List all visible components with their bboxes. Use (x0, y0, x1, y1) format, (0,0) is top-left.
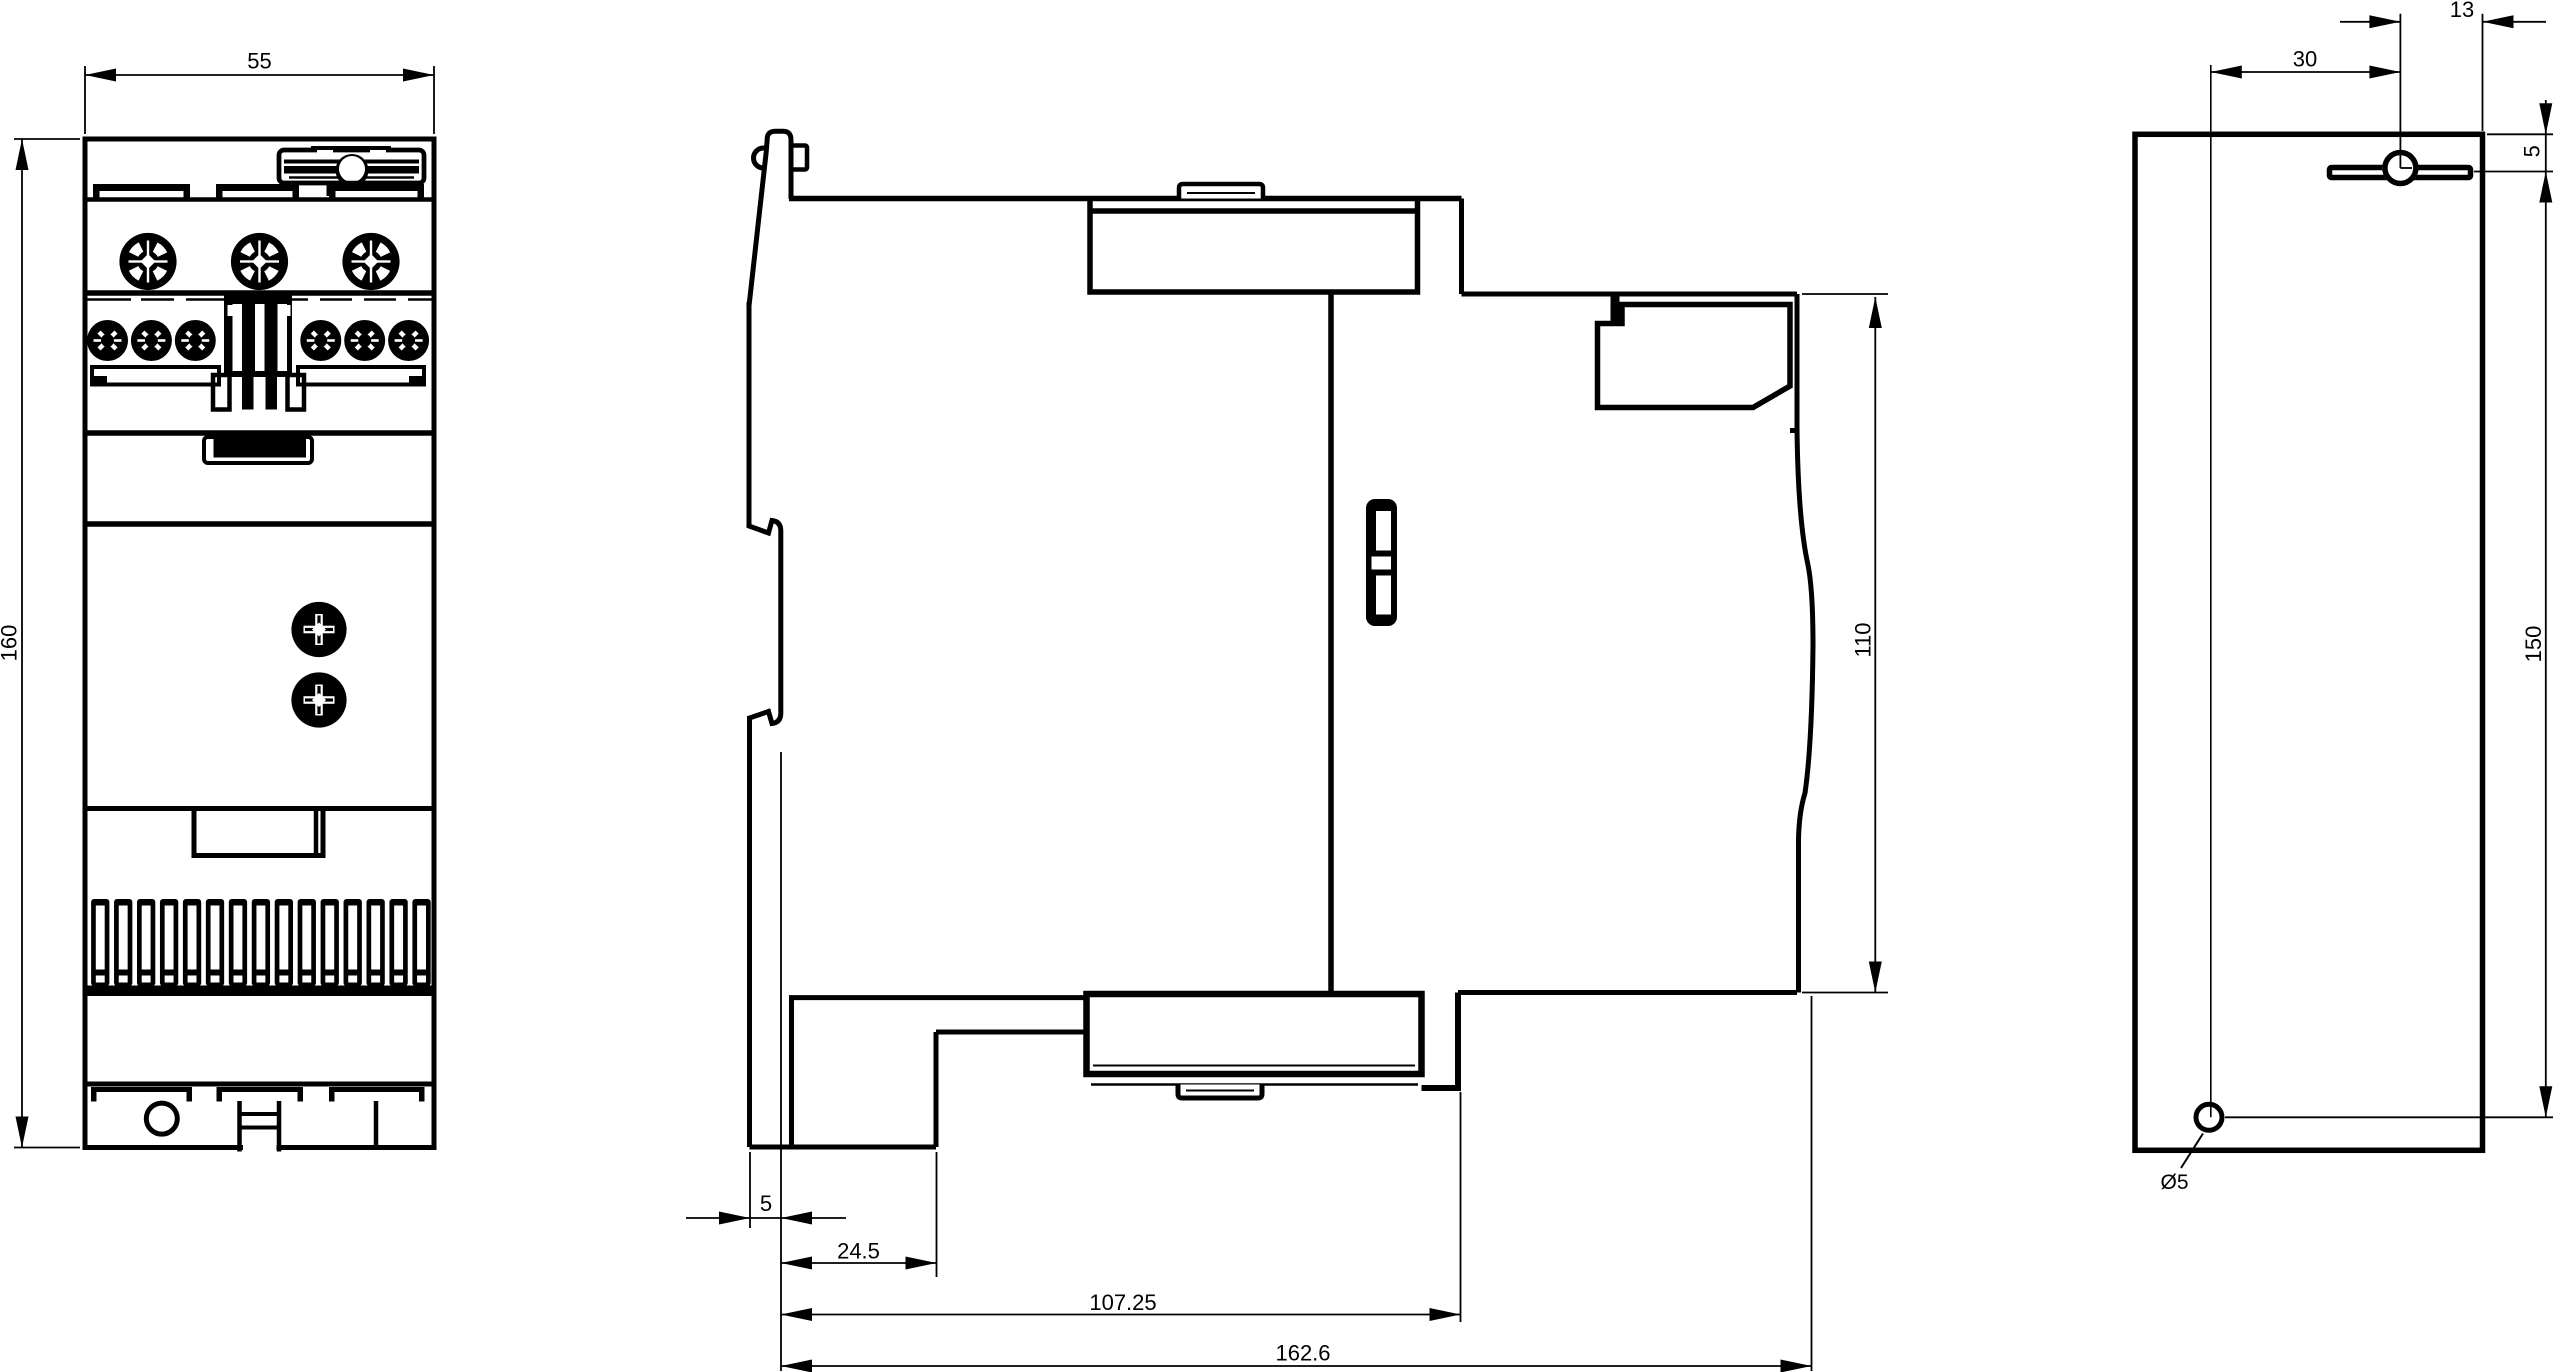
svg-text:24.5: 24.5 (837, 1239, 880, 1264)
svg-text:5: 5 (2520, 145, 2545, 157)
svg-text:5: 5 (760, 1191, 772, 1216)
svg-text:110: 110 (1851, 622, 1876, 657)
svg-text:13: 13 (2450, 0, 2474, 22)
svg-text:Ø5: Ø5 (2160, 1171, 2188, 1194)
svg-text:160: 160 (0, 625, 22, 662)
svg-text:30: 30 (2293, 47, 2317, 72)
svg-text:107.25: 107.25 (1089, 1290, 1156, 1315)
svg-text:150: 150 (2521, 626, 2546, 663)
svg-text:55: 55 (247, 49, 271, 74)
svg-text:162.6: 162.6 (1275, 1341, 1330, 1366)
